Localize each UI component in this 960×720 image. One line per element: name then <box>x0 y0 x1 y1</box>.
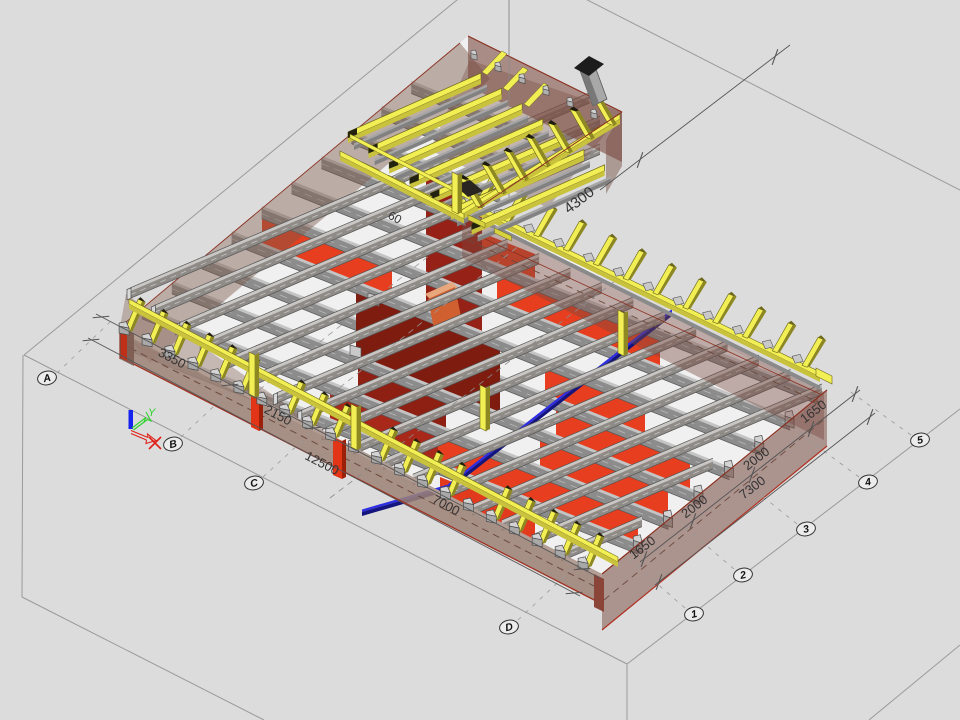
svg-text:Y: Y <box>148 407 156 419</box>
